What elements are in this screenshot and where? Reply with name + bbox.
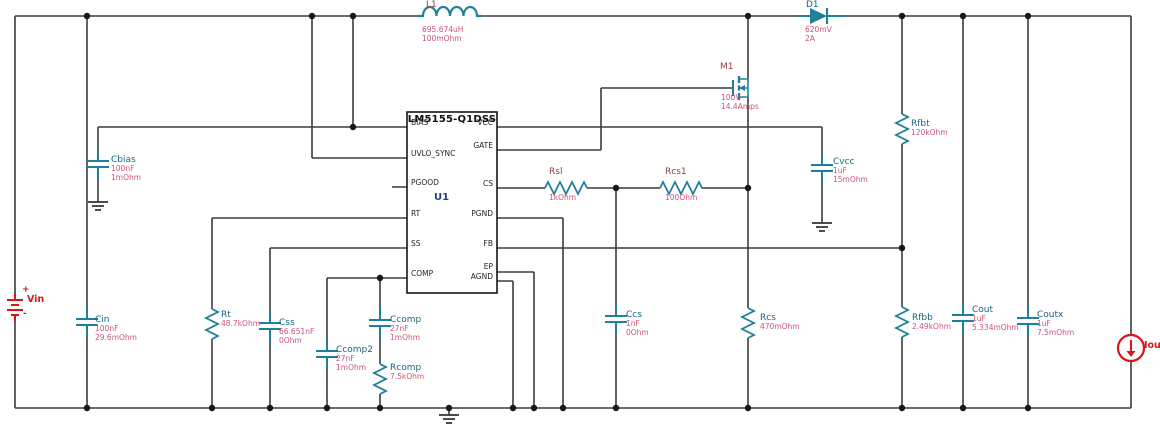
rcs-label: Rcs 470mOhm bbox=[760, 313, 800, 332]
ccomp2-label: Ccomp2 27nF 1mOhm bbox=[336, 345, 373, 372]
m1-values: 100V14.4Amps bbox=[721, 94, 759, 111]
rsl-label: Rsl bbox=[549, 167, 562, 177]
pin-uvlo-sync: UVLO_SYNC bbox=[411, 150, 455, 158]
pin-gate: GATE bbox=[407, 142, 493, 150]
rcomp-resistor-symbol[interactable] bbox=[374, 364, 386, 394]
rsl-values: 1kOhm bbox=[549, 194, 576, 203]
l1-label: L1 bbox=[426, 0, 437, 10]
ground-symbol bbox=[439, 415, 459, 423]
pin-fb: FB bbox=[407, 240, 493, 248]
pin-cs: CS bbox=[407, 180, 493, 188]
cvcc-capacitor-symbol[interactable] bbox=[811, 153, 833, 183]
vin-battery-symbol[interactable] bbox=[7, 293, 23, 321]
rfbb-resistor-symbol[interactable] bbox=[896, 307, 908, 337]
coutx-capacitor-symbol[interactable] bbox=[1017, 306, 1039, 336]
m1-label: M1 bbox=[720, 62, 734, 72]
wires bbox=[15, 16, 1131, 415]
ccs-capacitor-symbol[interactable] bbox=[605, 304, 627, 334]
rfbb-label: Rfbb 2.49kOhm bbox=[912, 313, 951, 332]
ground-symbol bbox=[812, 223, 832, 231]
d1-diode-symbol[interactable] bbox=[797, 8, 845, 24]
d1-values: 620mV2A bbox=[805, 26, 832, 43]
l1-values: 695.674uH100mOhm bbox=[422, 26, 463, 43]
rfbt-label: Rfbt 120kOhm bbox=[911, 119, 948, 138]
rt-label: Rt 48.7kOhm bbox=[221, 310, 260, 329]
cbias-capacitor-symbol[interactable] bbox=[87, 149, 109, 179]
cin-label: Cin 100nF 29.6mOhm bbox=[95, 315, 137, 342]
rcs1-label: Rcs1 bbox=[665, 167, 687, 177]
ccs-label: Ccs 1nF 0Ohm bbox=[626, 310, 649, 337]
pin-pgnd: PGND bbox=[407, 210, 493, 218]
ccomp-label: Ccomp 27nF 1mOhm bbox=[390, 315, 421, 342]
pin-ep: EP bbox=[407, 263, 493, 271]
rcs-resistor-symbol[interactable] bbox=[742, 308, 754, 338]
vin-label: Vin bbox=[27, 295, 44, 304]
rt-resistor-symbol[interactable] bbox=[206, 309, 218, 339]
rfbt-resistor-symbol[interactable] bbox=[896, 114, 908, 144]
schematic-canvas: LM5155-Q1DSS U1 BIAS UVLO_SYNC PGOOD RT … bbox=[0, 0, 1160, 438]
iout-label: Iout bbox=[1144, 341, 1160, 350]
coutx-label: Coutx 1uF 7.5mOhm bbox=[1037, 310, 1074, 337]
ccomp-capacitor-symbol[interactable] bbox=[369, 308, 391, 338]
rcomp-label: Rcomp 7.5kOhm bbox=[390, 363, 424, 382]
junction-dots bbox=[84, 13, 1031, 411]
battery-minus-sign: - bbox=[23, 310, 27, 319]
css-capacitor-symbol[interactable] bbox=[259, 311, 281, 341]
cvcc-label: Cvcc 1uF 15mOhm bbox=[833, 157, 868, 184]
ccomp2-capacitor-symbol[interactable] bbox=[316, 339, 338, 369]
cbias-label: Cbias 100nF 1mOhm bbox=[111, 155, 141, 182]
pin-vcc: VCC bbox=[407, 119, 493, 127]
cout-capacitor-symbol[interactable] bbox=[952, 303, 974, 333]
rcs1-values: 100Ohm bbox=[665, 194, 697, 203]
pin-agnd: AGND bbox=[407, 273, 493, 281]
schematic-drawing bbox=[0, 0, 1160, 438]
cout-label: Cout 1uF 5.334mOhm bbox=[972, 305, 1019, 332]
battery-plus-sign: + bbox=[22, 286, 30, 295]
ground-symbol bbox=[88, 202, 108, 210]
iout-current-source-symbol[interactable] bbox=[1118, 335, 1144, 361]
d1-label: D1 bbox=[806, 0, 819, 10]
css-label: Css 66.651nF 0Ohm bbox=[279, 318, 314, 345]
ic-refdes: U1 bbox=[434, 192, 449, 203]
